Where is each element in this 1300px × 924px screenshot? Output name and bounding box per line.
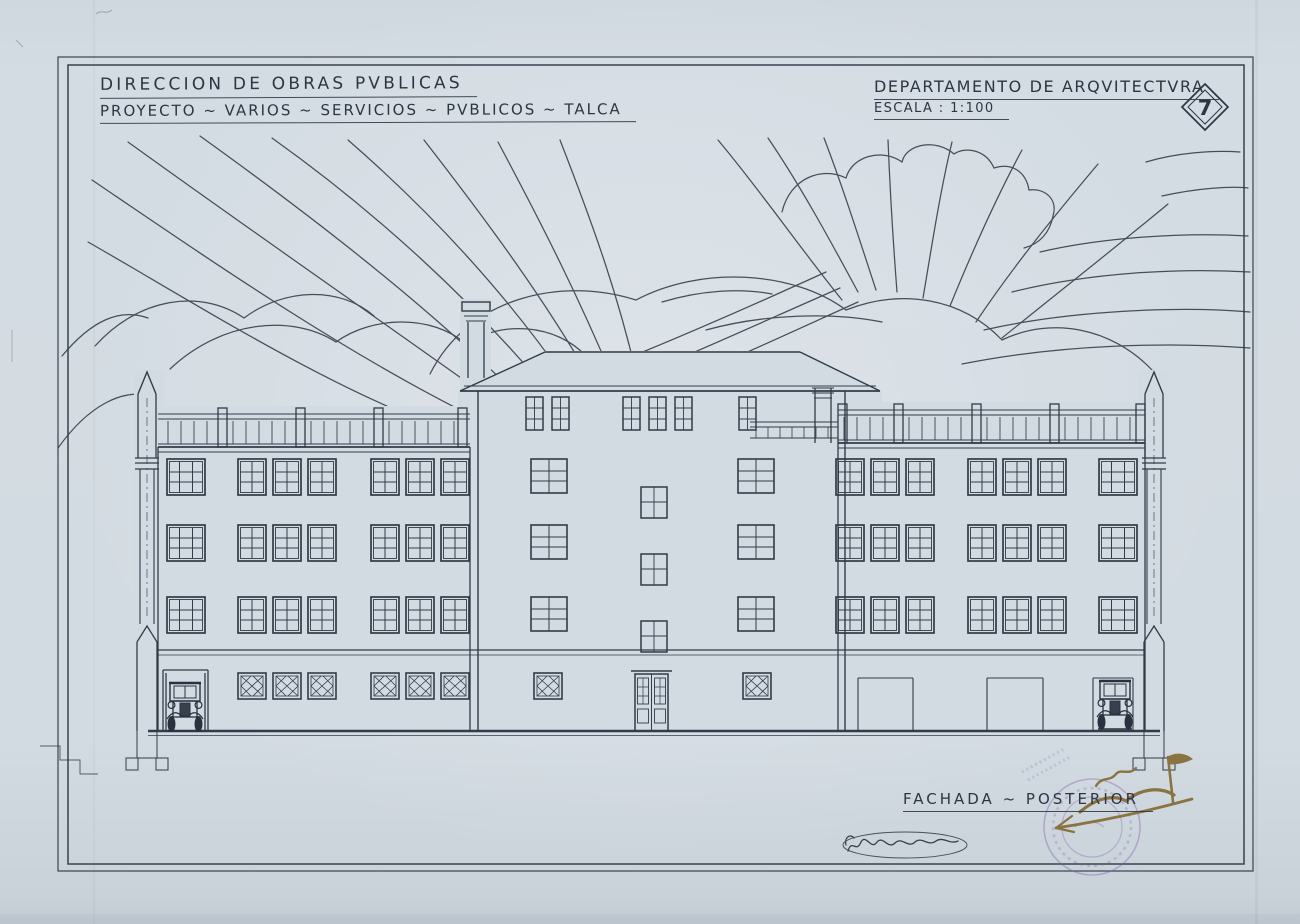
signature-author [843,832,967,858]
foundation-steps [40,746,98,774]
title-block-right-line2: ESCALA : 1:100 [874,101,1009,120]
title-proyecto: PROYECTO ~ VARIOS ~ SERVICIOS ~ PVBLICOS… [100,100,636,124]
facade-label: FACHADA ~ POSTERIOR [903,790,1153,812]
drawing-caption: FACHADA ~ POSTERIOR [903,790,1153,812]
title-block-left-line1: DIRECCION DE OBRAS PVBLICAS [100,73,477,99]
title-departamento: DEPARTAMENTO DE ARQVITECTVRA [874,77,1219,100]
building-silhouette [134,299,1169,731]
title-direccion: DIRECCION DE OBRAS PVBLICAS [100,73,477,99]
entrance-door [631,671,672,731]
title-block-left-line2: PROYECTO ~ VARIOS ~ SERVICIOS ~ PVBLICOS… [100,100,636,124]
blueprint-sheet: 7 DIRECCION DE OBRAS PVBLICAS PROYECTO ~… [0,0,1300,924]
scale-label: ESCALA : 1:100 [874,101,1009,120]
pencil-marks [12,10,112,362]
title-block-right-line1: DEPARTAMENTO DE ARQVITECTVRA [874,77,1219,100]
facade-drawing: 7 [0,0,1300,924]
